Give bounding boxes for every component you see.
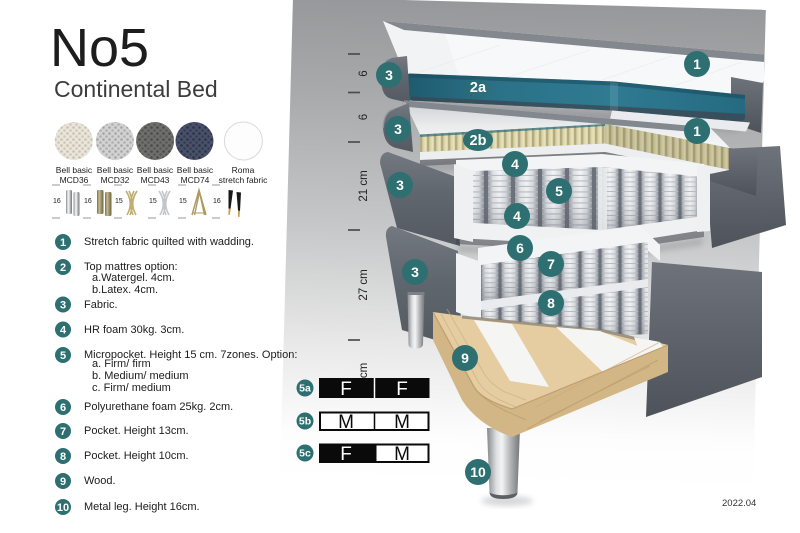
svg-text:2: 2 <box>60 262 66 274</box>
svg-text:F: F <box>396 379 408 400</box>
svg-text:F: F <box>340 444 352 465</box>
svg-text:4: 4 <box>511 156 519 172</box>
svg-text:4: 4 <box>513 208 521 224</box>
svg-text:10: 10 <box>57 502 69 514</box>
svg-text:3: 3 <box>60 300 66 312</box>
svg-text:9: 9 <box>60 476 66 488</box>
svg-text:M: M <box>394 444 410 465</box>
svg-text:6: 6 <box>358 114 370 120</box>
svg-text:5: 5 <box>60 350 66 362</box>
svg-text:5c: 5c <box>299 448 311 460</box>
svg-text:7: 7 <box>547 256 555 272</box>
svg-text:4: 4 <box>60 325 67 337</box>
svg-text:8: 8 <box>547 295 555 311</box>
svg-text:15: 15 <box>115 198 123 205</box>
svg-text:M: M <box>394 412 410 433</box>
svg-text:5a: 5a <box>299 383 311 395</box>
svg-text:9: 9 <box>461 350 469 366</box>
svg-text:16: 16 <box>213 198 221 205</box>
svg-text:6: 6 <box>358 70 370 76</box>
svg-text:6: 6 <box>60 402 66 414</box>
svg-text:16: 16 <box>84 198 92 205</box>
svg-text:3: 3 <box>411 264 419 280</box>
svg-text:F: F <box>340 379 352 400</box>
svg-text:2b: 2b <box>470 133 487 149</box>
svg-text:1: 1 <box>60 237 66 249</box>
svg-text:10: 10 <box>470 464 486 480</box>
svg-text:3: 3 <box>394 121 402 137</box>
svg-text:M: M <box>338 412 354 433</box>
svg-text:5b: 5b <box>299 416 311 428</box>
svg-text:7: 7 <box>60 426 66 438</box>
svg-text:27 cm: 27 cm <box>358 269 370 300</box>
svg-text:6: 6 <box>516 240 524 256</box>
svg-text:5: 5 <box>555 183 563 199</box>
svg-text:3: 3 <box>396 177 404 193</box>
svg-text:1: 1 <box>693 56 701 72</box>
svg-text:21 cm: 21 cm <box>358 170 370 201</box>
svg-text:3: 3 <box>385 67 393 83</box>
svg-text:15: 15 <box>179 198 187 205</box>
svg-text:1: 1 <box>693 123 701 139</box>
svg-text:8: 8 <box>60 451 66 463</box>
svg-text:2a: 2a <box>470 80 487 96</box>
svg-text:15: 15 <box>149 198 157 205</box>
svg-text:16: 16 <box>53 198 61 205</box>
